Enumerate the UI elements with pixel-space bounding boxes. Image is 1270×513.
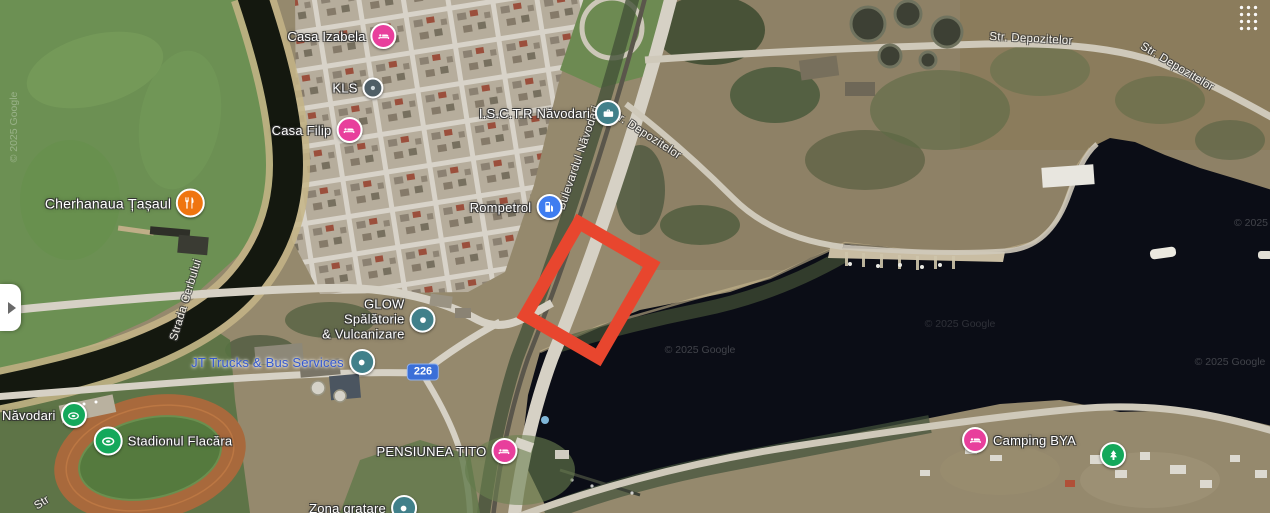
poi-label: Zona gratare [309, 501, 386, 513]
lodging-icon [371, 23, 397, 49]
generic-poi-icon [410, 307, 436, 333]
poi-label: Casa Filip [272, 123, 332, 138]
poi-rompetrol[interactable]: Rompetrol [470, 194, 563, 220]
google-attribution: © 2025 Google [925, 318, 996, 330]
poi-isctr-navodari[interactable]: I.S.C.T.R Năvodari [479, 100, 621, 126]
poi-casa-filip[interactable]: Casa Filip [272, 117, 363, 143]
lodging-icon [336, 117, 362, 143]
dots-grid [1238, 4, 1259, 31]
generic-poi-icon [349, 349, 375, 375]
lodging-icon [491, 438, 517, 464]
park-tree-icon [1100, 442, 1126, 468]
poi-park[interactable] [1100, 442, 1126, 468]
google-attribution: © 2025 Google [1195, 356, 1266, 368]
route-shield-226: 226 [407, 364, 439, 381]
poi-stadionul-flacara[interactable]: Stadionul Flacăra [94, 427, 233, 456]
poi-zona-gratare[interactable]: Zona gratare [309, 495, 417, 513]
poi-jt-trucks[interactable]: JT Trucks & Bus Services [191, 349, 375, 375]
generic-poi-icon [391, 495, 417, 513]
poi-label: Cherhanaua Țașaul [45, 195, 171, 211]
google-attribution: © 2025 Google [665, 344, 736, 356]
gas-station-icon [536, 194, 562, 220]
poi-casa-izabela[interactable]: Casa Izabela [287, 23, 396, 49]
generic-poi-icon [363, 78, 384, 99]
stadium-icon [94, 427, 123, 456]
poi-label: GLOW Spălătorie& Vulcanizare [301, 298, 405, 343]
side-panel-expand-button[interactable] [0, 284, 21, 331]
lodging-icon [962, 427, 988, 453]
poi-label: Camping BYA [993, 433, 1076, 448]
poi-label: PENSIUNEA TITO [377, 444, 487, 459]
poi-label: Năvodari [2, 408, 56, 423]
public-office-icon [595, 100, 621, 126]
restaurant-icon [176, 189, 205, 218]
poi-label: Rompetrol [470, 200, 532, 215]
google-attribution: © 2025 Google [8, 92, 20, 163]
map-canvas[interactable]: Casa Izabela KLS Casa Filip Cherhanaua Ț… [0, 0, 1270, 513]
poi-navodari-stadium[interactable]: Năvodari [2, 402, 87, 428]
poi-glow-spalatorie[interactable]: GLOW Spălătorie& Vulcanizare [301, 298, 436, 343]
poi-label: KLS [332, 81, 357, 96]
arrow-right-icon [8, 302, 16, 314]
google-attribution: © 2025 Google [1234, 217, 1270, 229]
poi-cherhanaua-tasaul[interactable]: Cherhanaua Țașaul [45, 189, 205, 218]
poi-label: I.S.C.T.R Năvodari [479, 106, 590, 121]
poi-kls[interactable]: KLS [332, 78, 383, 99]
poi-label: Casa Izabela [287, 29, 365, 44]
poi-label: JT Trucks & Bus Services [191, 355, 344, 370]
poi-pensiunea-tito[interactable]: PENSIUNEA TITO [377, 438, 518, 464]
stadium-icon [61, 402, 87, 428]
poi-label: Stadionul Flacăra [128, 434, 233, 449]
poi-camping-bya[interactable]: Camping BYA [962, 427, 1076, 453]
